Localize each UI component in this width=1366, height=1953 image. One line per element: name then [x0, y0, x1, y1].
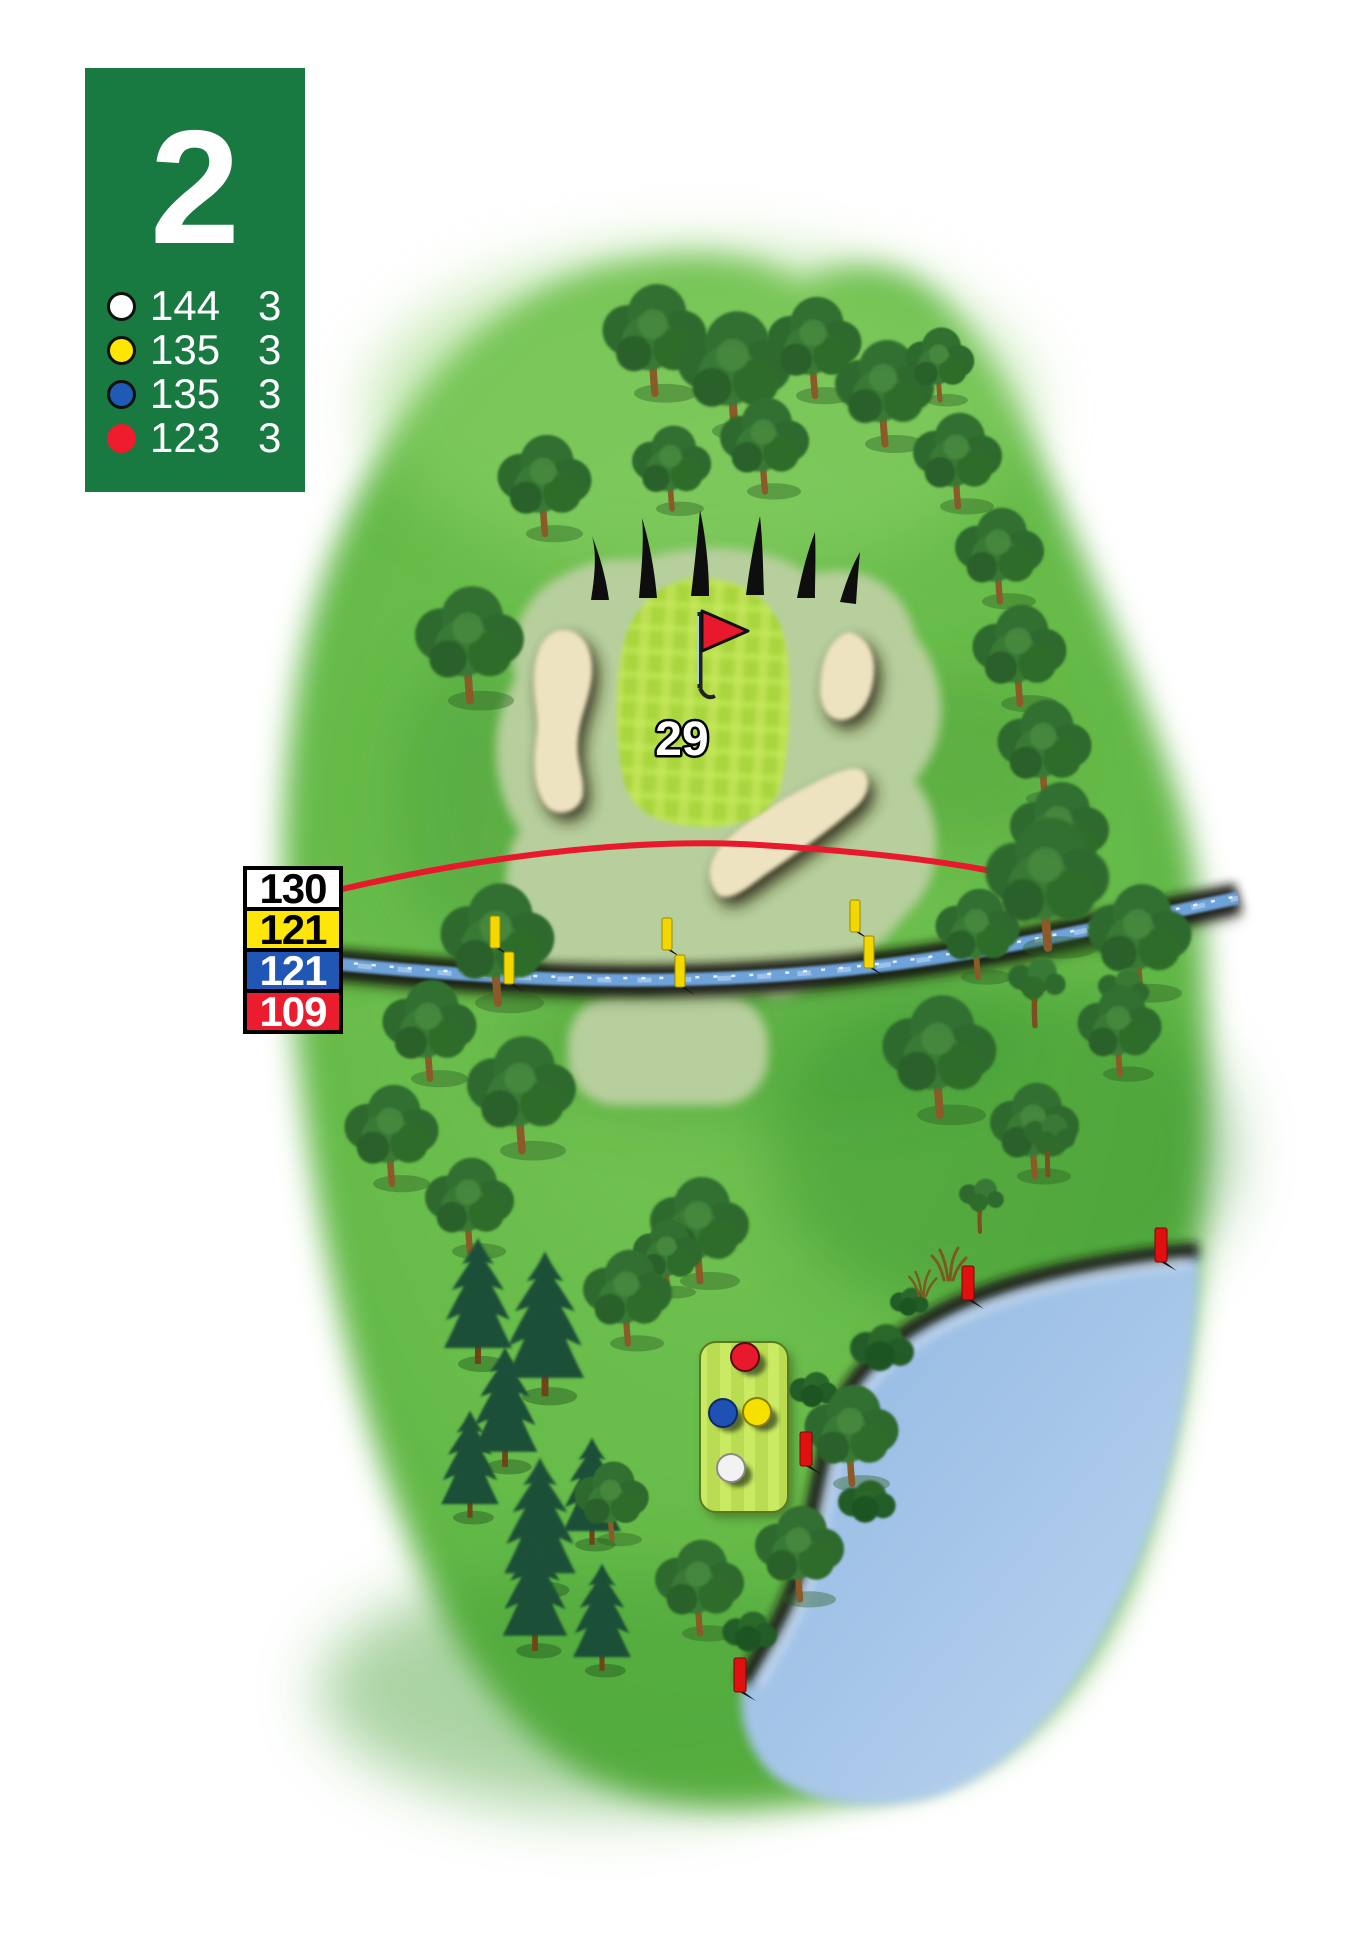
marker-label: 130: [259, 865, 326, 912]
tee-distance: 135: [150, 326, 246, 374]
distance-marker-stack: 130 121 121 109: [243, 866, 343, 1034]
blue-tee-icon: [107, 380, 136, 409]
marker-label: 121: [259, 947, 326, 994]
golf-hole-diagram: 29: [0, 0, 1366, 1953]
tee-par: 3: [258, 326, 281, 374]
tee-row-blue: 135 3: [85, 372, 305, 416]
tee-distance: 123: [150, 414, 246, 462]
distance-marker-blue: 121: [243, 948, 343, 993]
distance-marker-white: 130: [243, 866, 343, 911]
tee-par: 3: [258, 282, 281, 330]
green-depth-label: 29: [655, 713, 708, 766]
tee-par: 3: [258, 414, 281, 462]
marker-label: 121: [259, 906, 326, 953]
tee-row-yellow: 135 3: [85, 328, 305, 372]
hole-number: 2: [85, 98, 305, 278]
tee-par: 3: [258, 370, 281, 418]
distance-marker-yellow: 121: [243, 907, 343, 952]
white-tee-icon: [107, 292, 136, 321]
tee-distance-list: 144 3 135 3 135 3 123 3: [85, 284, 305, 460]
hole-info-card: 2 144 3 135 3 135 3 123 3: [85, 68, 305, 492]
marker-label: 109: [259, 988, 326, 1035]
distance-marker-red: 109: [243, 989, 343, 1034]
red-tee-icon: [107, 424, 136, 453]
tee-row-white: 144 3: [85, 284, 305, 328]
front-apron: [568, 995, 768, 1105]
yellow-tee-icon: [107, 336, 136, 365]
tee-row-red: 123 3: [85, 416, 305, 460]
tee-distance: 144: [150, 282, 246, 330]
tee-distance: 135: [150, 370, 246, 418]
